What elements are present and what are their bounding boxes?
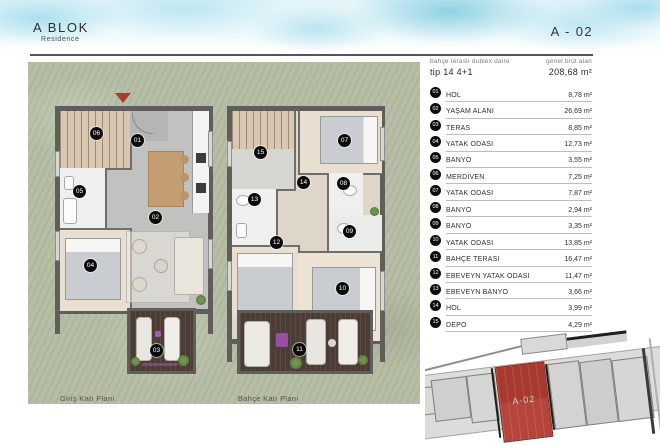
room-marker: 11 [293, 343, 306, 356]
dining-table [148, 151, 184, 207]
coffee-table [154, 259, 168, 273]
room-name: YATAK ODASI [446, 141, 493, 148]
room-number-badge: 02 [430, 103, 441, 114]
room-number-badge: 05 [430, 152, 441, 163]
room-area: 12,73 m² [564, 141, 592, 148]
room-marker: 14 [297, 176, 310, 189]
room-name: BAHÇE TERASI [446, 256, 500, 263]
site-plan-unit-highlight: A-02 [495, 361, 554, 443]
rooms-table: 01HOL8,78 m² 02YAŞAM ALANI26,69 m² 03TER… [430, 84, 592, 331]
garden-floor-plan [227, 106, 385, 344]
room-area: 3,66 m² [568, 289, 592, 296]
site-plan-roofline [567, 330, 628, 348]
entrance-arrow-icon [115, 93, 131, 103]
room-area: 16,47 m² [564, 256, 592, 263]
room-area: 8,85 m² [568, 125, 592, 132]
block-title: A BLOK [33, 20, 89, 35]
site-plan-building [431, 376, 472, 422]
bed [237, 253, 293, 313]
lounger [338, 319, 358, 365]
room-marker: 13 [248, 193, 261, 206]
toilet [64, 176, 74, 190]
stair-room [60, 111, 132, 170]
room-area: 4,29 m² [568, 322, 592, 329]
room-marker: 04 [84, 259, 97, 272]
flower-bed [142, 363, 178, 366]
window [380, 127, 385, 161]
unit-code: A - 02 [551, 24, 593, 39]
room-number-badge: 06 [430, 169, 441, 180]
plant [370, 207, 379, 216]
room-marker: 02 [149, 211, 162, 224]
window [208, 239, 213, 269]
terrace-11 [237, 310, 373, 374]
stair-room [232, 111, 296, 151]
room-number-badge: 01 [430, 87, 441, 98]
room-name: MERDİVEN [446, 174, 485, 181]
bathroom-05 [60, 168, 107, 230]
room-name: BANYO [446, 157, 472, 164]
room-area: 7,87 m² [568, 190, 592, 197]
room-marker: 07 [338, 134, 351, 147]
toilet [236, 223, 247, 238]
area-value: 208,68 m² [546, 67, 592, 77]
side-table [328, 339, 336, 347]
chair [180, 191, 189, 200]
room-name: DEPO [446, 322, 467, 329]
room-marker: 15 [254, 146, 267, 159]
room-marker: 01 [131, 134, 144, 147]
room-name: BANYO [446, 223, 472, 230]
room-marker: 06 [90, 127, 103, 140]
lounger [244, 321, 270, 367]
window [227, 141, 232, 167]
room-area: 8,78 m² [568, 92, 592, 99]
room-name: YATAK ODASI [446, 190, 493, 197]
chair [180, 155, 189, 164]
plan-area: 06 01 05 02 04 03 15 07 14 13 08 09 12 1… [28, 62, 420, 404]
room-area: 3,35 m² [568, 223, 592, 230]
room-number-badge: 15 [430, 317, 441, 328]
room-area: 7,25 m² [568, 174, 592, 181]
room-area: 11,47 m² [565, 273, 592, 280]
chair [180, 173, 189, 182]
plant [196, 295, 206, 305]
room-number-badge: 14 [430, 300, 441, 311]
lounger [136, 317, 152, 361]
flower-pot [155, 331, 161, 337]
site-plan-building [520, 333, 568, 354]
room-marker: 12 [270, 236, 283, 249]
type-value: tip 14 4+1 [430, 67, 510, 77]
room-name: EBEVEYN BANYO [446, 289, 508, 296]
room-name: YATAK ODASI [446, 240, 493, 247]
block-subtitle: Residence [41, 36, 79, 43]
room-area: 13,85 m² [564, 240, 592, 247]
room-name: TERAS [446, 125, 470, 132]
summary-area: genel brüt alan 208,68 m² [546, 58, 592, 77]
room-area: 3,55 m² [568, 157, 592, 164]
room-number-badge: 11 [430, 251, 441, 262]
room-area: 2,94 m² [568, 207, 592, 214]
room-marker: 10 [336, 282, 349, 295]
room-marker: 05 [73, 185, 86, 198]
garden-wall-stub [227, 342, 232, 362]
room-number-badge: 13 [430, 284, 441, 295]
room-number-badge: 10 [430, 235, 441, 246]
room-number-badge: 04 [430, 136, 441, 147]
plant [358, 355, 368, 365]
appliance [196, 153, 206, 163]
window [227, 261, 232, 291]
room-marker: 09 [343, 225, 356, 238]
plant [131, 357, 140, 366]
room-number-badge: 12 [430, 268, 441, 279]
window [380, 271, 385, 311]
area-label: genel brüt alan [546, 58, 592, 65]
room-name: EBEVEYN YATAK ODASI [446, 273, 530, 280]
room-name: HOL [446, 305, 461, 312]
summary: bahçe teraslı dublex daire tip 14 4+1 ge… [430, 58, 592, 77]
plan-caption-garden: Bahçe Katı Planı [238, 394, 299, 403]
armchair [132, 239, 147, 254]
type-label: bahçe teraslı dublex daire [430, 58, 510, 65]
room-name: YAŞAM ALANI [446, 108, 494, 115]
table-row: 15DEPO4,29 m² [430, 314, 592, 330]
room-number-badge: 08 [430, 202, 441, 213]
window [55, 151, 60, 177]
window [208, 131, 213, 167]
bathtub [63, 198, 77, 224]
window [55, 231, 60, 261]
lounger [164, 317, 180, 361]
garden-wall-stub [208, 312, 213, 334]
room-number-badge: 09 [430, 218, 441, 229]
lounger [306, 319, 326, 365]
room-name: HOL [446, 92, 461, 99]
garden-wall-stub [55, 312, 60, 334]
kitchen-counter [192, 111, 209, 213]
room-marker: 03 [150, 344, 163, 357]
room-area: 26,69 m² [564, 108, 592, 115]
garden-wall-stub [380, 342, 385, 362]
room-number-badge: 07 [430, 185, 441, 196]
plant [290, 357, 302, 369]
summary-type: bahçe teraslı dublex daire tip 14 4+1 [430, 58, 510, 77]
armchair [132, 277, 147, 292]
room-name: BANYO [446, 207, 472, 214]
room-number-badge: 03 [430, 120, 441, 131]
sofa [174, 237, 204, 295]
header-rule [30, 54, 593, 56]
plant [178, 355, 189, 366]
site-plan-unit-label: A-02 [499, 392, 548, 408]
flower-pot [276, 333, 288, 347]
terrace-03 [127, 308, 196, 374]
room-area: 3,99 m² [568, 305, 592, 312]
appliance [196, 183, 206, 193]
plan-caption-ground: Giriş Katı Planı [60, 394, 115, 403]
room-marker: 08 [337, 177, 350, 190]
site-plan: A-02 [425, 330, 660, 445]
page: A BLOK Residence A - 02 bahçe teraslı du… [0, 0, 660, 445]
